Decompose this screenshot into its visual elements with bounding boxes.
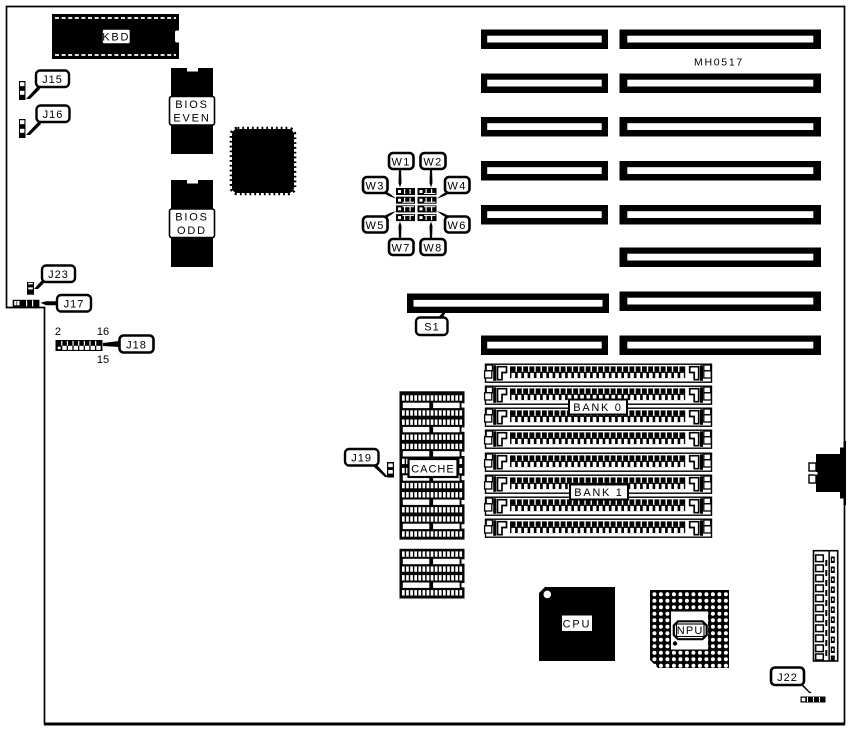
svg-text:S1: S1 bbox=[424, 322, 439, 334]
svg-text:2: 2 bbox=[55, 326, 61, 338]
svg-text:W7: W7 bbox=[392, 242, 411, 254]
svg-text:EVEN: EVEN bbox=[173, 113, 210, 125]
svg-text:CPU: CPU bbox=[563, 619, 592, 631]
svg-text:BIOS: BIOS bbox=[175, 212, 209, 224]
svg-text:BANK 0: BANK 0 bbox=[573, 402, 622, 414]
svg-text:W8: W8 bbox=[423, 242, 442, 254]
svg-text:16: 16 bbox=[97, 326, 109, 338]
svg-text:W6: W6 bbox=[448, 220, 467, 232]
svg-text:W3: W3 bbox=[366, 180, 385, 192]
svg-text:BANK 1: BANK 1 bbox=[574, 487, 623, 499]
svg-text:J19: J19 bbox=[351, 453, 372, 465]
svg-text:NPU: NPU bbox=[677, 625, 704, 637]
svg-text:J17: J17 bbox=[64, 299, 85, 311]
svg-text:J15: J15 bbox=[42, 74, 63, 86]
svg-text:J18: J18 bbox=[126, 340, 147, 352]
svg-text:J16: J16 bbox=[43, 109, 64, 121]
svg-text:BIOS: BIOS bbox=[175, 99, 209, 111]
svg-text:KBD: KBD bbox=[102, 32, 130, 44]
svg-text:W1: W1 bbox=[392, 156, 411, 168]
svg-text:ODD: ODD bbox=[177, 225, 207, 237]
svg-text:15: 15 bbox=[97, 354, 109, 366]
svg-text:J22: J22 bbox=[777, 672, 798, 684]
svg-text:CACHE: CACHE bbox=[411, 464, 455, 476]
svg-text:MH0517: MH0517 bbox=[694, 57, 744, 69]
svg-text:J23: J23 bbox=[48, 269, 69, 281]
svg-text:W2: W2 bbox=[423, 156, 442, 168]
svg-text:W5: W5 bbox=[366, 220, 385, 232]
svg-text:W4: W4 bbox=[448, 180, 467, 192]
